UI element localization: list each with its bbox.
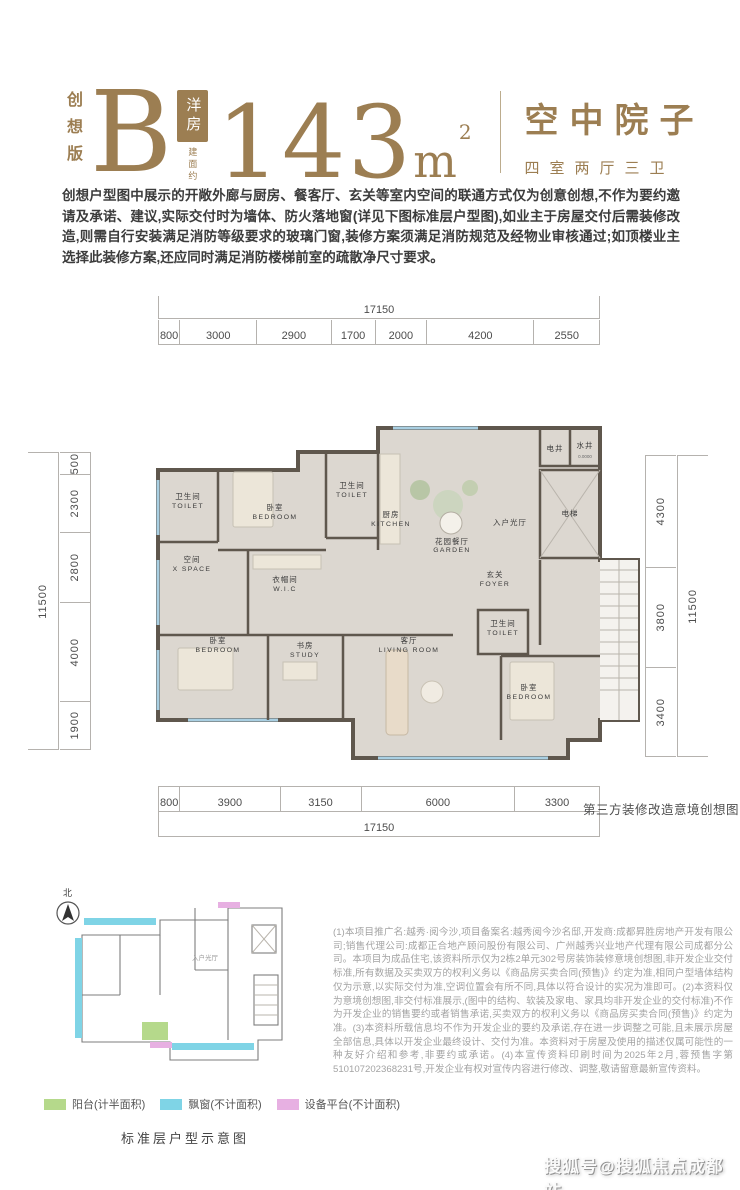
standard-plan-highlights — [75, 902, 254, 1050]
dim-value: 1900 — [69, 711, 81, 739]
dim-value: 17150 — [159, 812, 599, 836]
room-label: GARDEN — [433, 547, 470, 554]
dim-value: 17150 — [159, 296, 599, 318]
baywindow-swatch — [160, 1099, 182, 1110]
standard-plan-caption: 标准层户型示意图 — [55, 1128, 315, 1147]
dim-value: 3150 — [280, 787, 361, 811]
dim-top-total: 17150 — [158, 296, 600, 319]
room-label: 0.0000 — [578, 454, 592, 459]
legend-item-equipment: 设备平台(不计面积) — [277, 1096, 400, 1112]
area-exponent: 2 — [459, 120, 474, 144]
area-number: 143 — [216, 84, 413, 201]
third-party-caption: 第三方装修改造意境创想图 — [583, 799, 739, 818]
room-label: 花园餐厅 — [435, 536, 469, 546]
area-unit-letter: m — [413, 134, 459, 188]
room-label: TOILET — [336, 492, 368, 499]
housing-type-badge: 洋房 — [177, 90, 208, 142]
header-divider — [500, 91, 501, 173]
room-label: 书房 — [297, 640, 314, 650]
room-label: 空间 — [184, 554, 201, 564]
dim-value: 2300 — [69, 489, 81, 517]
room-label: 卫生间 — [175, 491, 201, 501]
room-label: 衣帽间 — [272, 574, 298, 584]
area-prefix-label: 建面约 — [186, 147, 199, 183]
room-label: BEDROOM — [507, 694, 552, 701]
equipment-swatch — [277, 1099, 299, 1110]
dim-value: 2900 — [256, 320, 330, 344]
dim-value: 3800 — [655, 603, 667, 631]
legend-item-balcony: 阳台(计半面积) — [44, 1096, 145, 1112]
room-label: STUDY — [290, 652, 320, 659]
dim-value: 1700 — [331, 320, 375, 344]
legend: 阳台(计半面积) 飘窗(不计面积) 设备平台(不计面积) — [44, 1096, 400, 1112]
badge-column: 洋房 建面约 — [177, 90, 208, 183]
dim-value: 11500 — [37, 584, 49, 619]
room-label: 厨房 — [383, 509, 400, 519]
standard-floor-plan: 北 入户光厅 — [20, 880, 305, 1110]
room-label: X SPACE — [173, 566, 212, 573]
dim-bottom-segments: 800 3900 3150 6000 3300 — [158, 786, 600, 812]
dim-value: 4200 — [426, 320, 533, 344]
dim-value: 3900 — [179, 787, 279, 811]
standard-plan-outline — [82, 908, 282, 1060]
room-label: BEDROOM — [196, 647, 241, 654]
room-label: 卧室 — [267, 502, 284, 512]
room-label: LIVING ROOM — [379, 647, 440, 654]
area-unit: m2 — [413, 134, 473, 188]
legal-disclaimer: (1)本项目推广名:越秀·阅今沙,项目备案名:越秀阅今沙名邸,开发商:成都昇胜房… — [333, 926, 733, 1077]
room-label: 入户光厅 — [493, 517, 527, 527]
north-arrow-icon: 北 — [57, 888, 79, 924]
dim-value: 3000 — [179, 320, 256, 344]
legend-label: 飘窗(不计面积) — [188, 1096, 261, 1112]
room-label: 电梯 — [562, 508, 579, 518]
dim-value: 500 — [69, 453, 81, 474]
dim-value: 800 — [159, 320, 179, 344]
dim-right-total: 11500 — [677, 455, 708, 757]
header-right: 空中院子 四室两厅三卫 — [525, 93, 705, 178]
dim-value: 800 — [159, 787, 179, 811]
balcony-swatch — [44, 1099, 66, 1110]
room-label: 卫生间 — [490, 618, 516, 628]
dim-top-segments: 800 3000 2900 1700 2000 4200 2550 — [158, 320, 600, 345]
page-title: 空中院子 — [525, 93, 705, 142]
watermark: 搜狐号@搜狐焦点成都站 — [544, 1152, 740, 1190]
legend-label: 设备平台(不计面积) — [305, 1096, 400, 1112]
edition-label: 创想版 — [60, 91, 84, 179]
dim-value: 2550 — [533, 320, 599, 344]
page-subtitle: 四室两厅三卫 — [525, 157, 705, 178]
dim-left-segments: 500 2300 2800 4000 1900 — [60, 452, 91, 750]
dim-value: 11500 — [687, 589, 699, 624]
dim-value: 2800 — [69, 553, 81, 581]
main-floor-plan: 卫生间 TOILET 卧室 BEDROOM 卫生间 TOILET 厨房 KITC… — [148, 410, 645, 782]
room-label: 电井 — [547, 443, 564, 453]
room-label: 卧室 — [521, 682, 538, 692]
dim-value: 3400 — [655, 698, 667, 726]
room-label: 水井 — [577, 440, 594, 450]
room-label: 卧室 — [210, 635, 227, 645]
legend-item-baywindow: 飘窗(不计面积) — [160, 1096, 261, 1112]
svg-text:北: 北 — [63, 888, 73, 898]
room-label: TOILET — [487, 630, 519, 637]
disclaimer-paragraph: 创想户型图中展示的开敞外廊与厨房、餐客厅、玄关等室内空间的联通方式仅为创意创想,… — [62, 186, 680, 268]
room-label: TOILET — [172, 503, 204, 510]
dim-right-segments: 4300 3800 3400 — [645, 455, 676, 757]
room-label: W.I.C — [273, 586, 297, 593]
room-label: 客厅 — [401, 635, 418, 645]
unit-type-letter: B — [90, 88, 172, 178]
dim-left-total: 11500 — [28, 452, 59, 750]
dim-bottom-total: 17150 — [158, 812, 600, 837]
poster-page: 创想版 B 洋房 建面约 143m2 空中院子 四室两厅三卫 创想户型图中展示的… — [0, 0, 740, 1190]
room-label: 玄关 — [487, 569, 504, 579]
room-label: KITCHEN — [371, 521, 411, 528]
room-label: 卫生间 — [339, 480, 365, 490]
dim-value: 2000 — [375, 320, 427, 344]
dim-value: 4300 — [655, 497, 667, 525]
legend-label: 阳台(计半面积) — [72, 1096, 145, 1112]
dim-value: 4000 — [69, 638, 81, 666]
room-label: FOYER — [480, 581, 510, 588]
room-label: BEDROOM — [253, 514, 298, 521]
dim-value: 6000 — [361, 787, 515, 811]
standard-plan-entry-label: 入户光厅 — [192, 953, 219, 962]
